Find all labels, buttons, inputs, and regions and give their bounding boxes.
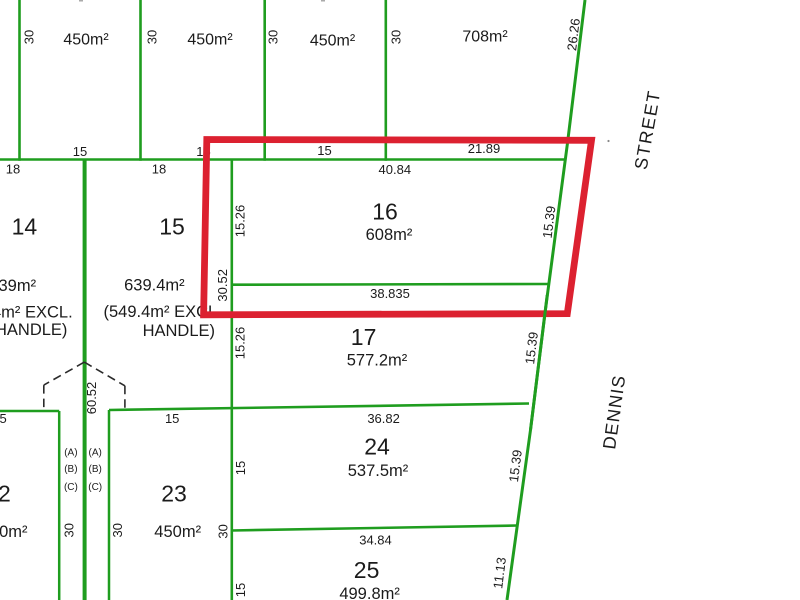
svg-text:(A): (A): [64, 447, 77, 458]
svg-text:34.84: 34.84: [359, 533, 392, 548]
svg-text:30: 30: [145, 30, 160, 44]
svg-text:HANDLE): HANDLE): [143, 322, 215, 340]
svg-text:450m²: 450m²: [63, 32, 109, 49]
svg-text:16: 16: [372, 199, 398, 225]
svg-text:15.26: 15.26: [233, 327, 248, 360]
svg-text:15: 15: [317, 143, 331, 158]
svg-text:24: 24: [364, 434, 390, 460]
svg-text:499.8m²: 499.8m²: [339, 585, 400, 600]
svg-text:577.2m²: 577.2m²: [347, 352, 408, 370]
svg-text:25: 25: [354, 557, 380, 583]
svg-text:639.4m²: 639.4m²: [124, 276, 185, 294]
svg-text:(B): (B): [89, 464, 102, 475]
svg-text:15: 15: [233, 583, 248, 597]
svg-text:708m²: 708m²: [462, 29, 508, 46]
svg-text:450m²: 450m²: [154, 523, 201, 541]
svg-text:537.5m²: 537.5m²: [348, 462, 409, 480]
svg-text:36.82: 36.82: [367, 411, 400, 426]
svg-text:4m² EXCL.: 4m² EXCL.: [0, 303, 73, 321]
svg-text:15: 15: [165, 411, 179, 426]
svg-text:38.835: 38.835: [370, 286, 410, 301]
svg-text:30: 30: [266, 30, 281, 44]
svg-text:HANDLE): HANDLE): [0, 321, 67, 339]
svg-text:(C): (C): [88, 482, 102, 493]
svg-text:608m²: 608m²: [366, 226, 413, 244]
svg-text:40.84: 40.84: [379, 162, 412, 177]
svg-text:30: 30: [22, 30, 37, 44]
svg-text:60.52: 60.52: [84, 382, 99, 415]
svg-text:450m²: 450m²: [0, 523, 28, 541]
svg-text:(A): (A): [89, 447, 102, 458]
svg-text:15: 15: [73, 144, 87, 159]
svg-text:30: 30: [215, 524, 230, 538]
svg-text:30.52: 30.52: [215, 269, 230, 302]
svg-text:450m²: 450m²: [187, 32, 233, 49]
svg-text:18: 18: [6, 162, 20, 177]
svg-text:(C): (C): [64, 482, 78, 493]
svg-text:18: 18: [152, 162, 166, 177]
svg-text:39m²: 39m²: [0, 277, 37, 295]
svg-text:30: 30: [61, 523, 76, 537]
svg-text:15: 15: [233, 461, 248, 475]
svg-text:14: 14: [12, 214, 38, 240]
svg-text:17: 17: [351, 324, 377, 350]
svg-text:15: 15: [159, 214, 185, 240]
svg-text:(B): (B): [64, 464, 77, 475]
svg-text:23: 23: [161, 481, 187, 507]
svg-text:15: 15: [0, 411, 7, 426]
svg-text:30: 30: [110, 523, 125, 537]
svg-text:450m²: 450m²: [310, 33, 356, 50]
svg-text:30: 30: [389, 30, 404, 44]
svg-text:15.26: 15.26: [233, 205, 248, 238]
svg-text:22: 22: [0, 481, 11, 507]
